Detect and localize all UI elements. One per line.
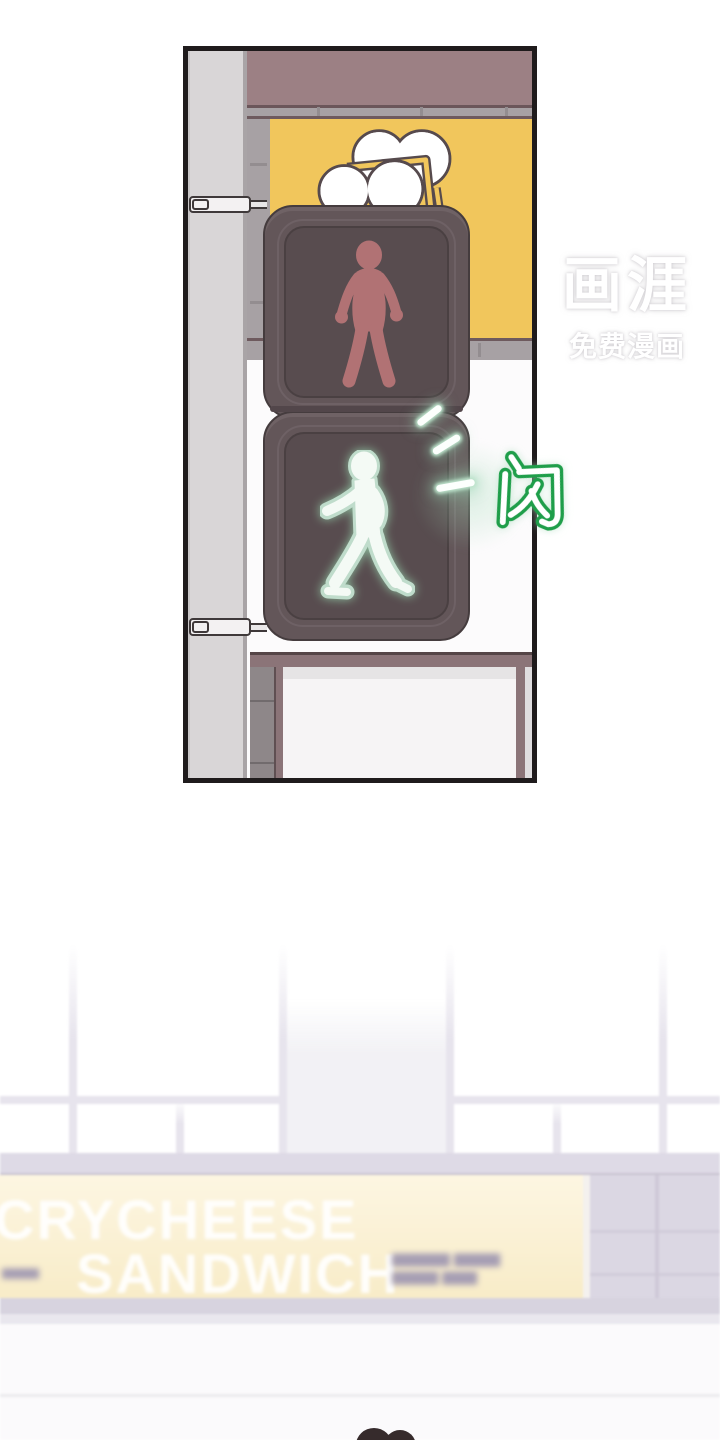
brick-joint xyxy=(505,107,508,116)
cloud-logo-icon xyxy=(296,120,471,217)
window-transom xyxy=(0,1096,283,1104)
post-joint xyxy=(250,762,274,764)
sfx-flash-character: 闪 xyxy=(481,442,579,548)
frame-inset xyxy=(282,667,516,679)
window-transom xyxy=(450,1096,720,1104)
frame-post-right xyxy=(525,667,532,778)
frame-trim-left xyxy=(274,667,283,778)
frame-top-rail xyxy=(250,652,532,667)
frame-interior xyxy=(283,679,516,778)
sign-underside-light xyxy=(0,1314,720,1324)
panel-interior xyxy=(188,51,532,778)
sfx-flash-glyph-icon xyxy=(481,442,579,548)
post-joint xyxy=(250,700,274,702)
window-mullion xyxy=(69,945,77,1153)
frame-trim-right xyxy=(516,667,525,778)
ground-line xyxy=(0,1394,720,1397)
wall-seam xyxy=(590,1230,720,1233)
window-mullion xyxy=(176,1100,184,1153)
watermark-tagline: 免费漫画 xyxy=(552,325,702,365)
sign-small-text-blurred: ▆▆▆▆▆ ▆▆▆▆ xyxy=(392,1249,500,1267)
red-standing-person-icon xyxy=(335,240,403,392)
brick-joint xyxy=(420,107,423,116)
shop-sign: CRYCHEESE SANDWICH ▆▆▆▆▆ ▆▆▆▆ ▆▆▆▆ ▆▆▆ ▆… xyxy=(0,1175,590,1298)
pedestrian-head xyxy=(356,1426,416,1440)
signal-pole xyxy=(188,51,247,778)
brick-joint xyxy=(250,163,267,166)
hair-lobe xyxy=(384,1430,416,1440)
watermark-brand: 画涯 xyxy=(552,253,702,319)
window-mullion xyxy=(553,1100,561,1153)
brick-joint xyxy=(478,343,481,357)
storefront-background: CRYCHEESE SANDWICH ▆▆▆▆▆ ▆▆▆▆ ▆▆▆▆ ▆▆▆ ▆… xyxy=(0,930,720,1440)
shop-sign-line2: SANDWICH xyxy=(76,1241,400,1306)
signal-box-red xyxy=(263,205,470,419)
sign-small-text-blurred: ▆▆▆▆ xyxy=(2,1265,39,1279)
window-mullion xyxy=(659,945,667,1153)
wall-right-of-sign xyxy=(590,1175,720,1315)
door-bay xyxy=(287,1000,446,1153)
lower-wall xyxy=(0,1324,720,1440)
wall-seam xyxy=(590,1273,720,1276)
sign-underside xyxy=(0,1298,720,1314)
comic-panel xyxy=(183,46,537,783)
clamp-fastener xyxy=(192,199,209,210)
sign-small-text-blurred: ▆▆▆▆ ▆▆▆ xyxy=(392,1267,477,1285)
comic-page: 闪 画涯 免费漫画 xyxy=(0,0,720,1440)
brick-joint xyxy=(317,107,320,116)
window-mullion xyxy=(279,945,287,1153)
wall-seam xyxy=(655,1175,659,1315)
wall-top-band xyxy=(247,51,532,108)
sign-fascia xyxy=(0,1153,720,1175)
window-mullion xyxy=(446,945,454,1153)
watermark: 画涯 免费漫画 xyxy=(552,253,702,365)
walking-person-icon xyxy=(320,450,415,605)
clamp-fastener xyxy=(192,621,209,633)
